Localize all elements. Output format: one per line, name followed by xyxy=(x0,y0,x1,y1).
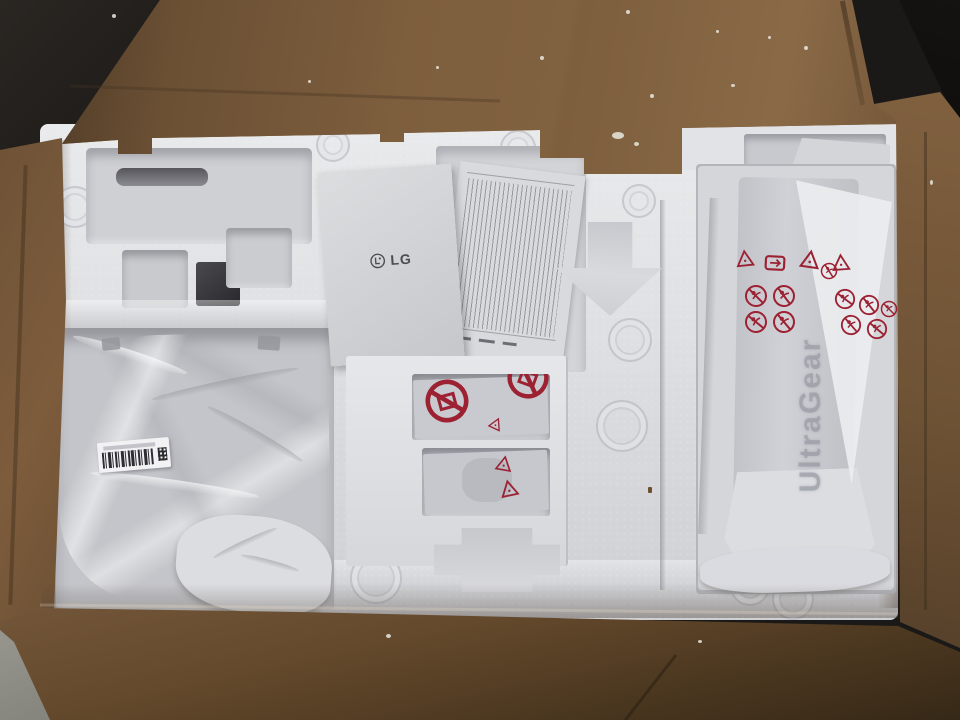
paint-speck xyxy=(930,180,933,185)
document-bold-text xyxy=(502,342,516,347)
document-bold-text xyxy=(479,339,495,344)
emboss-ring xyxy=(622,184,656,218)
paint-speck xyxy=(650,94,654,98)
foam-groove xyxy=(660,200,666,590)
emboss-ring xyxy=(596,400,648,452)
recycle-triangle-icon xyxy=(492,452,515,475)
recycle-triangle-icon xyxy=(733,247,757,271)
paint-speck xyxy=(698,640,702,643)
manual-brand-text: LG xyxy=(390,251,413,268)
paint-speck xyxy=(308,80,311,83)
barcode xyxy=(102,448,157,469)
paint-speck xyxy=(540,56,544,60)
paint-speck xyxy=(436,66,439,69)
accessory-window-top xyxy=(412,374,550,440)
recycle-triangle-icon xyxy=(496,476,522,502)
paint-smear xyxy=(612,132,624,139)
bag-clip-mark xyxy=(258,335,281,351)
suffocation-warning-icon xyxy=(880,300,898,318)
plastic-film-recycle-icon xyxy=(761,249,788,276)
label-2d-code xyxy=(157,447,167,461)
paint-speck xyxy=(634,142,639,146)
document-fine-print xyxy=(450,178,571,338)
paint-speck xyxy=(112,14,116,18)
suffocation-warning-icon xyxy=(833,287,858,312)
lg-logo: LG xyxy=(323,245,458,274)
barcode-label xyxy=(97,437,171,473)
paint-speck xyxy=(626,10,630,14)
ultragear-brand-text: UltraGear xyxy=(794,305,830,525)
suffocation-warning-icon xyxy=(857,293,881,317)
paint-speck xyxy=(768,36,771,39)
suffocation-warning-icon xyxy=(865,317,889,341)
foam-module-front-step xyxy=(58,300,332,330)
bag-clip-mark xyxy=(101,337,120,351)
paint-speck xyxy=(804,46,808,50)
suffocation-warning-icon xyxy=(818,260,839,281)
paint-speck xyxy=(731,84,735,87)
box-wall-crease xyxy=(924,132,927,610)
foam-slot-opening xyxy=(116,168,208,186)
debris-speck xyxy=(648,487,652,493)
suffocation-warning-icon xyxy=(744,284,768,308)
paint-speck xyxy=(386,634,391,638)
emboss-ring xyxy=(608,318,652,362)
open-monitor-box-photo: LG xyxy=(0,0,960,720)
suffocation-warning-icon xyxy=(743,309,769,335)
lg-manual-booklet: LG xyxy=(317,164,464,367)
suffocation-warning-icon xyxy=(839,313,862,336)
lg-logo-mark xyxy=(369,252,386,269)
accessory-window-bottom xyxy=(422,448,550,516)
foam-pocket-right xyxy=(226,228,292,288)
paint-speck xyxy=(716,30,719,33)
